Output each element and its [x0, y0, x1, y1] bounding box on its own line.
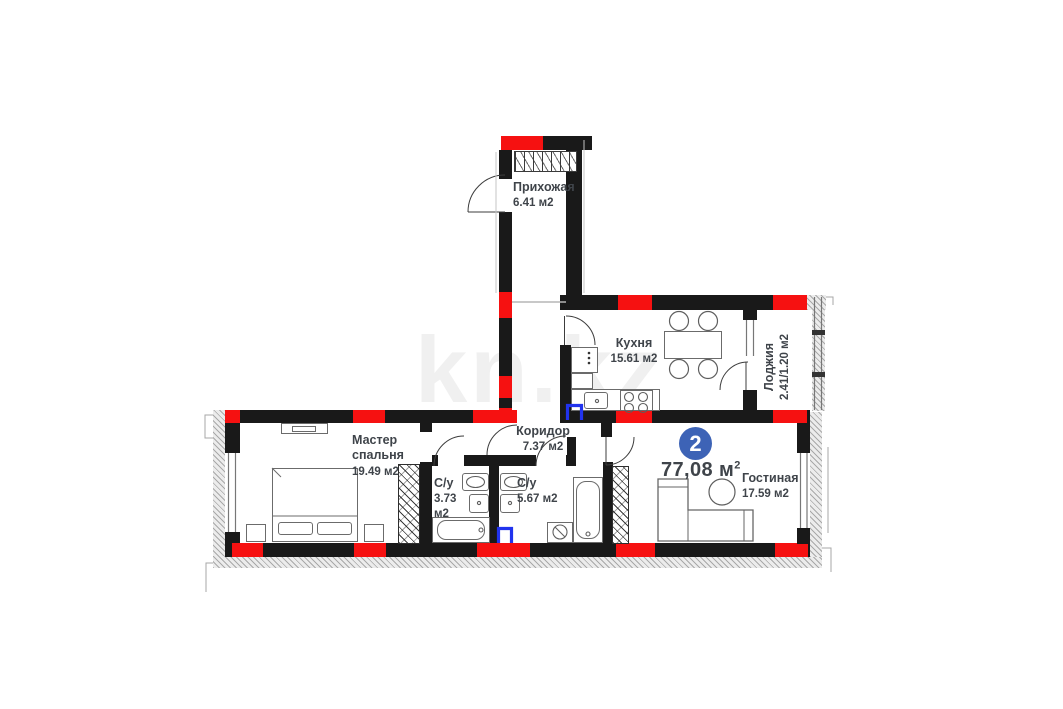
wall-marker-red: [354, 543, 386, 557]
room-label-bathroom-2: С/у 5.67 м2: [517, 476, 561, 507]
wall-marker-red: [477, 543, 530, 557]
sofa: [658, 479, 753, 541]
room-area: 6.41 м2: [513, 196, 583, 210]
nightstand: [364, 524, 384, 542]
wall-segment: [499, 212, 512, 292]
room-label-kitchen: Кухня 15.61 м2: [596, 336, 672, 367]
coffee-table: [709, 479, 735, 505]
bathtub-basin: [576, 481, 600, 539]
total-area-sup: 2: [734, 459, 741, 471]
room-label-bathroom-1: С/у 3.73 м2: [434, 476, 474, 521]
total-area-value: 77,08 м: [661, 459, 734, 481]
room-area: 3.73 м2: [434, 492, 474, 521]
room-name: Прихожая: [513, 180, 583, 195]
wall-hatch: [807, 295, 826, 310]
wall-segment: [499, 318, 512, 376]
wall-marker-red: [225, 410, 240, 423]
room-label-hallway: Прихожая 6.41 м2: [513, 180, 583, 211]
room-name: С/у: [434, 476, 474, 491]
room-name: Гостиная: [742, 471, 804, 486]
bathtub-basin: [437, 520, 485, 540]
wall-segment: [240, 410, 353, 423]
room-name: Лоджия: [762, 334, 777, 400]
wall-marker-red: [773, 295, 807, 310]
wall-marker-red: [499, 292, 512, 318]
wall-marker-red: [232, 543, 263, 557]
wall-segment: [499, 455, 536, 466]
room-count: 2: [689, 431, 701, 457]
nightstand: [246, 524, 266, 542]
kitchen-counter: [571, 373, 593, 389]
room-label-corridor: Коридор 7.37 м2: [508, 424, 578, 455]
wall-segment: [420, 462, 432, 543]
wall-segment: [432, 455, 438, 466]
wall-marker-red: [499, 376, 512, 398]
wall-marker-red: [353, 410, 385, 423]
floor-plan: kn.kz: [0, 0, 1063, 709]
washing-machine: [547, 522, 573, 543]
wall-marker-red: [616, 543, 655, 557]
wall-marker-red: [775, 543, 808, 557]
wall-segment: [560, 295, 618, 310]
wall-marker-red: [473, 410, 517, 423]
wall-segment: [652, 295, 743, 310]
wall-segment: [489, 455, 499, 543]
room-area: 7.37 м2: [508, 440, 578, 454]
fridge: [571, 347, 598, 373]
room-area: 5.67 м2: [517, 492, 561, 506]
room-name: Кухня: [596, 336, 672, 351]
wall-marker-red: [618, 295, 652, 310]
exterior-hatch-right: [810, 412, 822, 557]
wall-marker-red: [616, 410, 652, 423]
exterior-hatch-bottom: [213, 556, 822, 568]
living-wardrobe: [612, 466, 629, 544]
room-count-badge: 2: [679, 427, 712, 460]
room-area: 19.49 м2: [352, 465, 414, 479]
room-name: С/у: [517, 476, 561, 491]
pillow: [317, 522, 352, 535]
dining-table: [664, 331, 722, 359]
wall-segment: [797, 528, 810, 544]
pillow: [278, 522, 313, 535]
room-area: 15.61 м2: [596, 352, 672, 366]
wall-segment: [601, 423, 612, 437]
wall-marker-red: [501, 136, 543, 150]
dresser-detail: [292, 426, 316, 432]
chair: [670, 312, 689, 331]
room-name: Коридор: [508, 424, 578, 439]
room-area: 2.41/1.20 м2: [778, 334, 792, 400]
room-name: Мастер спальня: [352, 433, 414, 464]
wall-segment: [757, 295, 773, 310]
wall-marker-red: [773, 410, 807, 423]
room-label-loggia: Лоджия 2.41/1.20 м2: [735, 323, 819, 411]
wall-segment: [385, 410, 473, 423]
chair: [699, 360, 718, 379]
wall-segment: [225, 423, 240, 453]
room-label-living-room: Гостиная 17.59 м2: [742, 471, 804, 502]
wall-segment: [499, 150, 512, 179]
exterior-hatch-left: [213, 410, 225, 557]
stove: [620, 390, 653, 411]
wall-segment: [420, 423, 432, 432]
chair: [699, 312, 718, 331]
hallway-wardrobe: [514, 151, 577, 172]
total-area: 77,08 м2: [661, 459, 741, 482]
wall-segment: [743, 295, 757, 320]
wall-segment: [499, 398, 512, 408]
room-label-master-bedroom: Мастер спальня 19.49 м2: [352, 433, 414, 479]
wall-segment: [464, 455, 489, 466]
wall-segment: [797, 423, 810, 453]
room-area: 17.59 м2: [742, 487, 804, 501]
kitchen-sink: [584, 392, 608, 409]
chair: [670, 360, 689, 379]
